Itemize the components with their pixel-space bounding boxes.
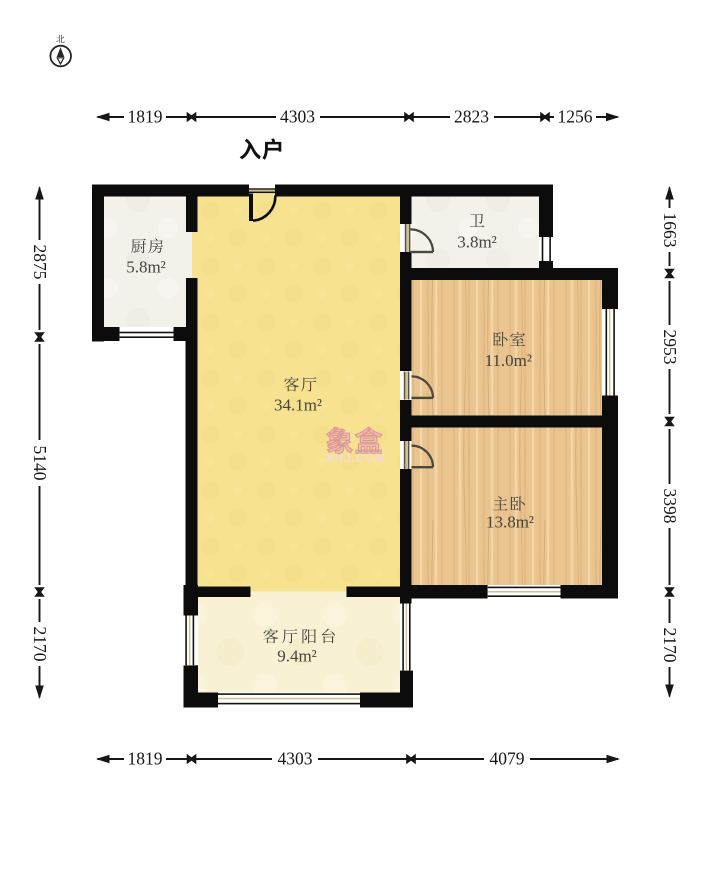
- svg-text:3.8m²: 3.8m²: [457, 233, 497, 252]
- svg-text:11.0m²: 11.0m²: [485, 351, 532, 370]
- svg-text:1819: 1819: [128, 749, 163, 769]
- svg-text:2170: 2170: [30, 627, 50, 662]
- svg-text:XHJ.COM: XHJ.COM: [326, 453, 386, 465]
- svg-text:4303: 4303: [280, 107, 315, 127]
- svg-text:2953: 2953: [660, 330, 680, 365]
- svg-text:2823: 2823: [454, 107, 489, 127]
- svg-text:1256: 1256: [558, 107, 593, 127]
- svg-text:2170: 2170: [660, 628, 680, 663]
- svg-text:4079: 4079: [490, 749, 525, 769]
- svg-text:4303: 4303: [278, 749, 313, 769]
- svg-text:5140: 5140: [30, 446, 50, 481]
- svg-text:9.4m²: 9.4m²: [277, 647, 317, 666]
- svg-text:2875: 2875: [30, 245, 50, 280]
- svg-text:3398: 3398: [660, 489, 680, 524]
- svg-text:34.1m²: 34.1m²: [274, 396, 322, 415]
- svg-text:13.8m²: 13.8m²: [486, 513, 534, 532]
- svg-text:1663: 1663: [660, 213, 680, 248]
- svg-text:1819: 1819: [128, 107, 163, 127]
- svg-text:5.8m²: 5.8m²: [126, 258, 166, 277]
